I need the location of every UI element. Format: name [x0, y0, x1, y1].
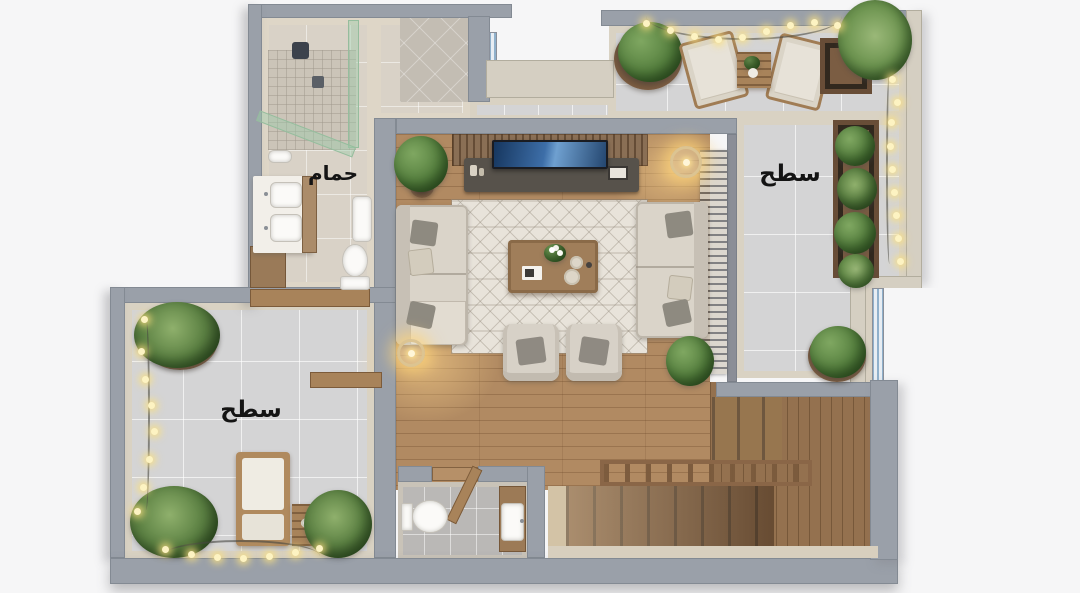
string-light-bulb — [148, 402, 155, 409]
wc-toilet-bowl — [412, 500, 448, 533]
string-light-bulb — [162, 546, 169, 553]
sink-basin-1 — [270, 182, 302, 208]
string-light-bulb — [787, 22, 794, 29]
console-decor-vase-2 — [479, 168, 484, 176]
table-vase — [748, 68, 758, 78]
lounger-cushion-seat — [242, 514, 284, 540]
sofa-right-backrest — [694, 202, 708, 338]
string-light-bulb — [134, 508, 141, 515]
shower-glass-right — [348, 20, 359, 148]
planter-plant — [837, 168, 877, 210]
label-bathroom: حمام — [301, 162, 365, 188]
bathroom-fixture — [352, 196, 372, 242]
string-light-bulb — [889, 166, 896, 173]
grass-plant-top-right — [838, 0, 912, 80]
string-light-bulb — [316, 545, 323, 552]
planter-plant — [838, 254, 874, 288]
string-light-wire-left-terrace — [134, 318, 150, 510]
wall-terrace-left-left — [110, 287, 125, 558]
exterior-mask — [884, 288, 938, 382]
wc-faucet-icon — [520, 519, 524, 523]
pillow — [408, 248, 435, 277]
pillow — [662, 299, 692, 328]
towel-roll — [268, 150, 292, 163]
faucet-icon-2 — [264, 226, 268, 230]
table-book-cover — [525, 269, 534, 277]
string-light-bulb — [146, 456, 153, 463]
toilet-bowl — [342, 244, 368, 277]
toilet-tank — [340, 276, 370, 290]
wall-shelf — [310, 372, 382, 388]
wall-terrace-bottom — [716, 382, 882, 397]
string-light-bulb — [140, 484, 147, 491]
pillow — [578, 336, 610, 366]
sofa-left — [396, 205, 468, 345]
armchair-left — [503, 324, 559, 381]
string-light-bulb — [811, 19, 818, 26]
string-light-bulb — [894, 99, 901, 106]
faucet-icon-1 — [264, 192, 268, 196]
string-light-bulb — [240, 555, 247, 562]
string-light-bulb — [893, 212, 900, 219]
table-flower-dots — [549, 247, 555, 253]
string-light-bulb — [691, 33, 698, 40]
shower-drain — [312, 76, 324, 88]
console-photo-frame — [608, 166, 628, 180]
floor-lamp-bottom — [397, 339, 425, 367]
tv-screen — [492, 140, 608, 169]
string-light-bulb — [763, 28, 770, 35]
table-vase-2 — [564, 269, 580, 285]
string-light-bulb — [889, 76, 896, 83]
console-decor-vase-1 — [470, 165, 477, 176]
string-light-bulb — [214, 554, 221, 561]
string-light-bulb — [891, 189, 898, 196]
bush-terrace-right-bottom — [810, 326, 866, 378]
stairs-lower-flight — [566, 486, 774, 548]
armchair-right — [566, 324, 622, 381]
sink-basin-2 — [270, 214, 302, 242]
planter-plant — [834, 212, 876, 254]
bathroom-gray-tiles — [400, 18, 470, 102]
wall-wc-right — [527, 466, 545, 558]
floor-plan-render: حمام سطح سطح — [0, 0, 1080, 593]
string-light-bulb — [667, 27, 674, 34]
wall-living-right — [727, 134, 737, 382]
pillow — [667, 275, 694, 302]
wall-living-top — [396, 118, 737, 134]
wall-notch-parapet — [486, 60, 614, 98]
lounger-cushion-back — [242, 458, 284, 510]
string-light-bulb — [834, 22, 841, 29]
pillow — [515, 336, 546, 366]
table-bowl — [586, 262, 592, 268]
floor-lamp-top — [670, 146, 702, 178]
stairs-first-tread — [548, 486, 566, 548]
wall-wc-top-left — [398, 466, 432, 482]
terrace-side-table — [737, 52, 771, 88]
string-light-bulb — [138, 348, 145, 355]
planter-box-right — [833, 120, 879, 278]
string-light-bulb — [292, 549, 299, 556]
string-light-bulb — [897, 258, 904, 265]
houseplant-bottom-right — [666, 336, 714, 386]
string-light-bulb — [739, 34, 746, 41]
stairs-railing — [600, 460, 812, 486]
window-terrace-stairs — [872, 288, 884, 384]
wall-stairs-right — [870, 380, 898, 560]
wall-bottom — [110, 558, 898, 584]
pillow — [406, 301, 436, 330]
label-terrace-right: سطح — [758, 161, 822, 189]
coffee-table — [508, 240, 598, 293]
glass-door-top — [489, 32, 497, 62]
pillow — [664, 210, 693, 238]
string-light-bulb — [643, 20, 650, 27]
wall-living-left — [374, 118, 396, 558]
pillow — [409, 219, 438, 246]
houseplant-top-left — [394, 136, 448, 192]
sun-lounger — [236, 452, 290, 546]
string-light-bulb — [888, 119, 895, 126]
string-light-bulb — [266, 553, 273, 560]
string-light-bulb — [142, 376, 149, 383]
string-light-bulb — [151, 428, 158, 435]
string-light-bulb — [895, 235, 902, 242]
string-light-bulb — [715, 36, 722, 43]
string-light-bulb — [188, 551, 195, 558]
label-terrace-left: سطح — [219, 397, 283, 425]
string-light-bulb — [887, 143, 894, 150]
stairs-upper-flight — [712, 397, 782, 461]
string-light-bulb — [141, 316, 148, 323]
planter-plant — [835, 126, 875, 166]
stairs-bottom-landing — [548, 546, 878, 558]
table-vase-1 — [570, 256, 583, 269]
bench-terrace-left-top — [250, 289, 370, 307]
shower-head-icon — [292, 42, 309, 59]
palm-left-terrace-right — [304, 490, 372, 558]
sofa-right — [636, 202, 708, 338]
sofa-right-seam — [636, 266, 694, 268]
table-flowers — [544, 244, 566, 262]
